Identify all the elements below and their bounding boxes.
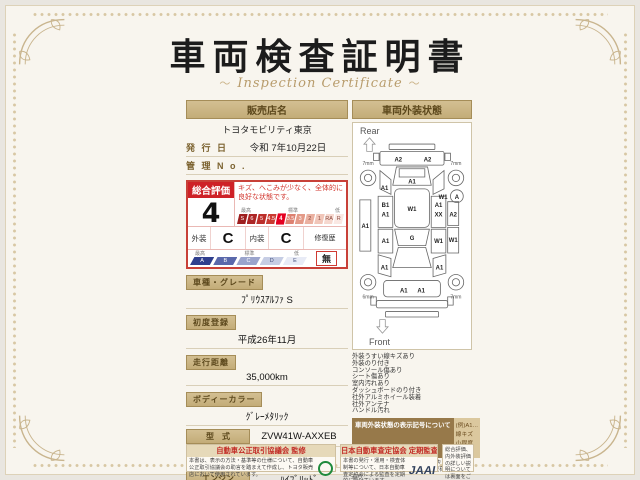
- see-reverse-box: 総合評価、内外装評価の詳しい説明については裏面をご覧ください。: [442, 444, 474, 472]
- dealer-name: トヨタモビリティ東京: [186, 119, 348, 138]
- code-windshield: G: [410, 236, 415, 242]
- fair-trade-council-body: 本書は、表示の方法・基準等の仕様について、自動車公正取引協議会の助言を踏まえて作…: [187, 457, 335, 479]
- code-roof: W1: [408, 207, 418, 213]
- jaai-audit-body: 本書の発行・運用・検査体制等について、日本自動車査定協会による監査を定期的に受け…: [341, 457, 437, 480]
- rating-scale-cell: 5: [256, 214, 267, 224]
- subtitle-text: Inspection Certificate: [237, 76, 402, 91]
- repair-history-value: 無: [316, 251, 337, 266]
- rating-top: 総合評価 4 キズ、へこみが少なく、全体的に良好な状態です。 最高 標準 低 S…: [188, 182, 346, 226]
- mgmt-no-row: 管 理 N o .: [186, 157, 348, 175]
- grade-scale-labels: 最高 標準 低: [191, 250, 307, 257]
- model-code-label: 型 式: [186, 429, 250, 444]
- rating-scale-ribbon: S 6 5 4.5 4 3.5 3 2 1 RA R: [235, 214, 346, 226]
- corner-flourish-icon: [570, 410, 626, 466]
- jaai-audit-box: 日本自動車査定協会 定期監査 本書の発行・運用・検査体制等について、日本自動車査…: [340, 444, 438, 472]
- code-mirror: A: [455, 195, 460, 201]
- page-title: 車両検査証明書: [6, 28, 634, 80]
- code-rear-bumper-right: A2: [424, 157, 432, 163]
- subtitle-flourish: ～: [219, 77, 231, 90]
- dealer-header: 販売店名: [186, 100, 348, 119]
- grade-scale-row: 最高 標準 低 A B C D E 無: [188, 249, 346, 267]
- grade-label-low: 低: [294, 250, 299, 257]
- tread-rear-left: 7mm: [362, 161, 373, 167]
- scale-label-high: 最高: [241, 207, 251, 214]
- code-door-rear-left-1: B1: [382, 203, 390, 209]
- rating-scale-labels: 最高 標準 低: [235, 207, 346, 214]
- fair-trade-council-text: 本書は、表示の方法・基準等の仕様について、自動車公正取引協議会の助言を踏まえて作…: [189, 458, 316, 478]
- lace-border-left: [12, 32, 17, 448]
- rating-scale-cell: R: [333, 214, 344, 224]
- inspection-certificate-page: 車両検査証明書 ～Inspection Certificate～ 販売店名 トヨ…: [0, 0, 640, 480]
- mgmt-no-label: 管 理 N o .: [186, 159, 247, 172]
- code-fender-right: A1: [436, 265, 444, 271]
- lace-border-right: [623, 32, 628, 448]
- repair-history-label: 修復歴: [304, 227, 346, 249]
- code-door-rear-right-2: XX: [435, 212, 443, 218]
- exterior-panel-header: 車両外装状態: [352, 100, 472, 119]
- exterior-label: 外装: [188, 227, 211, 249]
- code-front-bumper-left: A1: [400, 288, 408, 294]
- tread-front-left: 6mm: [362, 295, 373, 301]
- code-quarter-rear-right: A2: [449, 212, 457, 218]
- condition-notes-list: 外装うすい線キズあり 外装のり付き コンソール傷あり シート傷あり 室内汚れあり…: [352, 354, 472, 415]
- issue-date-label: 発 行 日: [186, 141, 228, 154]
- code-mirror-adjacent: W1: [439, 195, 449, 201]
- car-damage-diagram: A2 A2 7mm 7mm A1 A1 W1 A B1 A1 A1 XX A2 …: [358, 132, 466, 330]
- code-quarter-rear-left: A1: [381, 186, 389, 192]
- jaai-logo: JAAI: [407, 464, 436, 479]
- scale-label-low: 低: [335, 207, 340, 214]
- rating-header: 総合評価: [188, 182, 234, 198]
- rating-scale-cell: 3: [295, 214, 306, 224]
- code-rear-gate: A1: [408, 179, 416, 185]
- tread-rear-right: 7mm: [450, 161, 461, 167]
- code-rear-bumper-left: A2: [394, 157, 402, 163]
- code-front-bumper-right: A1: [417, 288, 425, 294]
- rating-comment: キズ、へこみが少なく、全体的に良好な状態です。: [235, 182, 346, 207]
- model-grade-value: ﾌﾟﾘｳｽｱﾙﾌｧ S: [186, 290, 348, 307]
- code-door-front-right: W1: [434, 239, 444, 245]
- grade-cell: D: [260, 257, 284, 265]
- exterior-grade: C: [211, 227, 246, 249]
- rating-detail-column: キズ、へこみが少なく、全体的に良好な状態です。 最高 標準 低 S 6 5 4.…: [235, 182, 346, 226]
- exterior-condition-panel: 車両外装状態 Rear: [352, 100, 472, 480]
- front-arrow-icon: [375, 318, 390, 334]
- overall-rating-box: 総合評価 4 キズ、へこみが少なく、全体的に良好な状態です。 最高 標準 低 S…: [186, 180, 348, 269]
- first-registration-value: 平成26年11月: [186, 330, 348, 347]
- code-rocker-right: W1: [449, 238, 459, 244]
- rating-scale-cell: 3.5: [285, 214, 296, 224]
- vehicle-info-panel: 販売店名 トヨタモビリティ東京 発 行 日 令和 7年10月22日 管 理 N …: [186, 100, 348, 480]
- rating-scale-cell: 2: [304, 214, 315, 224]
- rating-scale-cell-selected: 4: [276, 213, 287, 225]
- certificate-sheet: 車両検査証明書 ～Inspection Certificate～ 販売店名 トヨ…: [5, 5, 635, 475]
- rating-score-column: 総合評価 4: [188, 182, 235, 226]
- rating-scale-cell: 6: [247, 214, 258, 224]
- mileage-label: 走行距離: [186, 355, 236, 370]
- code-door-rear-right-1: A1: [435, 203, 443, 209]
- issue-date-value: 令和 7年10月22日: [228, 140, 348, 154]
- front-label: Front: [369, 337, 390, 347]
- scale-label-mid: 標準: [288, 207, 298, 214]
- body-color-label: ボディーカラー: [186, 392, 262, 407]
- grade-cell: A: [190, 257, 214, 265]
- grade-label-high: 最高: [195, 250, 205, 257]
- issue-date-row: 発 行 日 令和 7年10月22日: [186, 138, 348, 157]
- exterior-interior-row: 外装 C 内装 C 修復歴: [188, 226, 346, 249]
- first-registration-row: 初度登録 平成26年11月: [186, 312, 348, 349]
- code-door-front-left: A1: [382, 239, 390, 245]
- model-code-value: ZVW41W-AXXEB: [250, 431, 348, 442]
- first-registration-label: 初度登録: [186, 315, 236, 330]
- see-reverse-text: 総合評価、内外装評価の詳しい説明については裏面をご覧ください。: [443, 445, 473, 480]
- code-fender-left: A1: [381, 265, 389, 271]
- rating-scale-cell: S: [237, 214, 248, 224]
- body-color-row: ボディーカラー ｸﾞﾚｰﾒﾀﾘｯｸ: [186, 389, 348, 426]
- grade-cell: C: [236, 257, 260, 265]
- jaai-audit-header: 日本自動車査定協会 定期監査: [341, 445, 437, 457]
- fair-trade-council-logo: [318, 461, 333, 476]
- page-subtitle: ～Inspection Certificate～: [6, 75, 634, 91]
- interior-grade: C: [269, 227, 304, 249]
- rating-scale-cell: 4.5: [266, 214, 277, 224]
- rating-scale-cell: RA: [324, 214, 335, 224]
- code-door-rear-left-2: A1: [382, 212, 390, 218]
- jaai-audit-text: 本書の発行・運用・検査体制等について、日本自動車査定協会による監査を定期的に受け…: [343, 458, 407, 480]
- tread-front-right: 7mm: [450, 295, 461, 301]
- grade-cell: B: [213, 257, 237, 265]
- corner-flourish-icon: [14, 410, 70, 466]
- car-diagram-box: Rear: [352, 122, 472, 350]
- condition-note: ハンドル汚れ: [352, 408, 472, 415]
- body-color-value: ｸﾞﾚｰﾒﾀﾘｯｸ: [186, 407, 348, 424]
- fair-trade-council-header: 自動車公正取引協議会 監修: [187, 445, 335, 457]
- repair-history-value-box: 無: [307, 250, 346, 267]
- mileage-value: 35,000km: [186, 370, 348, 384]
- grade-cells: A B C D E: [191, 257, 307, 265]
- rating-scale-cell: 1: [314, 214, 325, 224]
- mileage-row: 走行距離 35,000km: [186, 352, 348, 386]
- grade-label-mid: 標準: [244, 250, 254, 257]
- model-grade-row: 車種・グレード ﾌﾟﾘｳｽｱﾙﾌｧ S: [186, 272, 348, 309]
- fair-trade-council-box: 自動車公正取引協議会 監修 本書は、表示の方法・基準等の仕様について、自動車公正…: [186, 444, 336, 472]
- model-grade-label: 車種・グレード: [186, 275, 263, 290]
- interior-label: 内装: [246, 227, 269, 249]
- grade-cell: E: [283, 257, 307, 265]
- rating-score: 4: [188, 198, 234, 229]
- subtitle-flourish: ～: [409, 77, 421, 90]
- grade-scale-ribbon: 最高 標準 低 A B C D E: [188, 250, 307, 267]
- lace-border-top: [32, 12, 608, 17]
- code-rocker-left: A1: [362, 224, 370, 230]
